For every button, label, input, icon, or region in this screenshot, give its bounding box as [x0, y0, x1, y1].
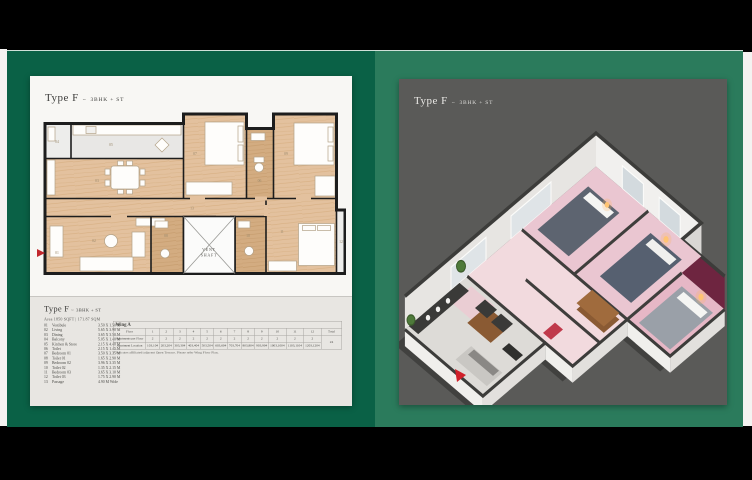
page-background: { "accent_colors": { "panel_left_green":…	[0, 0, 752, 480]
floor-cell: 8	[241, 328, 255, 335]
vent-shaft: VENT SHAFT	[184, 217, 236, 274]
loc-cell: 203,204	[159, 342, 173, 349]
total-value: 24	[321, 335, 342, 349]
apf-cell: 2	[214, 335, 228, 342]
card-title-suffix: 3BHK + ST	[459, 100, 493, 106]
slide-panel-3d: Type F ~ 3BHK + ST	[375, 50, 743, 427]
room-number: 06	[258, 179, 262, 183]
floor-cell: 1	[146, 328, 160, 335]
floor-cell: 4	[187, 328, 201, 335]
detail-title-prefix: Type F	[44, 304, 69, 314]
card-title-tilde: ~	[83, 97, 87, 103]
card-title-suffix: 3BHK + ST	[90, 97, 124, 103]
floorplan-2d-svg: VENT SHAFT 01 02 03 04 05 06 07 08 09 10…	[36, 107, 346, 297]
detail-title-suffix: 3BHK + ST	[76, 308, 101, 313]
floorplan-3d-svg	[399, 117, 727, 405]
loc-cell: 503,504	[200, 342, 214, 349]
slide-panel-2d: Type F ~ 3BHK + ST	[7, 50, 375, 427]
wing-row-label: Apartments per Floor	[113, 335, 146, 342]
room-number: 08	[164, 234, 168, 238]
room-legend-row: 13Passage4.90 M Wide	[44, 379, 139, 384]
loc-cell: 803,804	[241, 342, 255, 349]
apf-cell: 2	[304, 335, 322, 342]
apf-cell: 2	[146, 335, 160, 342]
detail-title: Type F ~ 3BHK + ST	[44, 304, 101, 314]
wing-row-label: Floor	[113, 328, 146, 335]
loc-cell: 1203,1204	[304, 342, 322, 349]
room-number: 02	[92, 239, 96, 243]
room-number: 11	[280, 230, 284, 234]
vent-shaft-label-line2: SHAFT	[201, 253, 217, 258]
room-number: 13	[190, 207, 194, 211]
room-no: 13	[44, 379, 52, 384]
floor-cell: 9	[255, 328, 269, 335]
room-name: Passage	[52, 379, 98, 384]
floor-cell: 5	[200, 328, 214, 335]
loc-cell: 1103,1104	[286, 342, 303, 349]
card-title-prefix: Type F	[45, 92, 79, 104]
wing-table-footnote: * Indicates affiliated/adjacent Open Ter…	[113, 351, 342, 355]
apf-cell: 2	[255, 335, 269, 342]
room-number: 12	[339, 240, 343, 244]
vent-shaft-label-line1: VENT	[202, 247, 216, 252]
card-title-tilde: ~	[452, 100, 456, 106]
floor-cell: 2	[159, 328, 173, 335]
apf-cell: 2	[269, 335, 287, 342]
wing-row-label: Apartment Location	[113, 342, 146, 349]
floorplan-3d-card: Type F ~ 3BHK + ST	[399, 79, 727, 405]
apf-cell: 2	[228, 335, 242, 342]
room-dim: 4.90 M Wide	[98, 379, 139, 384]
room-number: 03	[95, 179, 99, 183]
floor-cell: 3	[173, 328, 187, 335]
loc-cell: 103,104	[146, 342, 160, 349]
room-number: 10	[246, 234, 250, 238]
apf-cell: 2	[159, 335, 173, 342]
apf-cell: 2	[200, 335, 214, 342]
loc-cell: 303,304	[173, 342, 187, 349]
area-line: Area 1850 SQFT | 171.87 SQM	[44, 317, 100, 322]
wing-table: Wing A Floor 1 2 3 4 5 6 7 8 9 10	[113, 321, 342, 350]
apf-cell: 2	[241, 335, 255, 342]
detail-title-tilde: ~	[71, 308, 74, 313]
card-title-2d: Type F ~ 3BHK + ST	[45, 88, 124, 106]
floor-cell: 7	[228, 328, 242, 335]
wing-table-title: Wing A	[113, 321, 342, 328]
floor-cell: 12	[304, 328, 322, 335]
apf-cell: 2	[173, 335, 187, 342]
room-number: 09	[284, 152, 288, 156]
loc-cell: 1003,1004	[269, 342, 287, 349]
floorplan-2d-card: Type F ~ 3BHK + ST	[30, 76, 352, 405]
room-number: 01	[55, 251, 59, 255]
detail-section: Type F ~ 3BHK + ST Area 1850 SQFT | 171.…	[30, 296, 352, 406]
loc-cell: 603,604	[214, 342, 228, 349]
card-title-prefix: Type F	[414, 95, 448, 107]
floor-cell: 6	[214, 328, 228, 335]
room-number: 05	[109, 143, 113, 147]
window-edge-strip-right	[743, 52, 752, 426]
apf-cell: 2	[187, 335, 201, 342]
floor-cell: 10	[269, 328, 287, 335]
apf-cell: 2	[286, 335, 303, 342]
total-label: Total	[321, 328, 342, 335]
loc-cell: 903,904	[255, 342, 269, 349]
loc-cell: 403,404	[187, 342, 201, 349]
wing-table-block: Wing A Floor 1 2 3 4 5 6 7 8 9 10	[113, 321, 342, 355]
floor-cell: 11	[286, 328, 303, 335]
room-number: 04	[55, 140, 59, 144]
window-edge-strip-left	[0, 49, 7, 426]
card-title-3d: Type F ~ 3BHK + ST	[414, 91, 493, 109]
loc-cell: 703,704	[228, 342, 242, 349]
room-number: 07	[193, 152, 197, 156]
